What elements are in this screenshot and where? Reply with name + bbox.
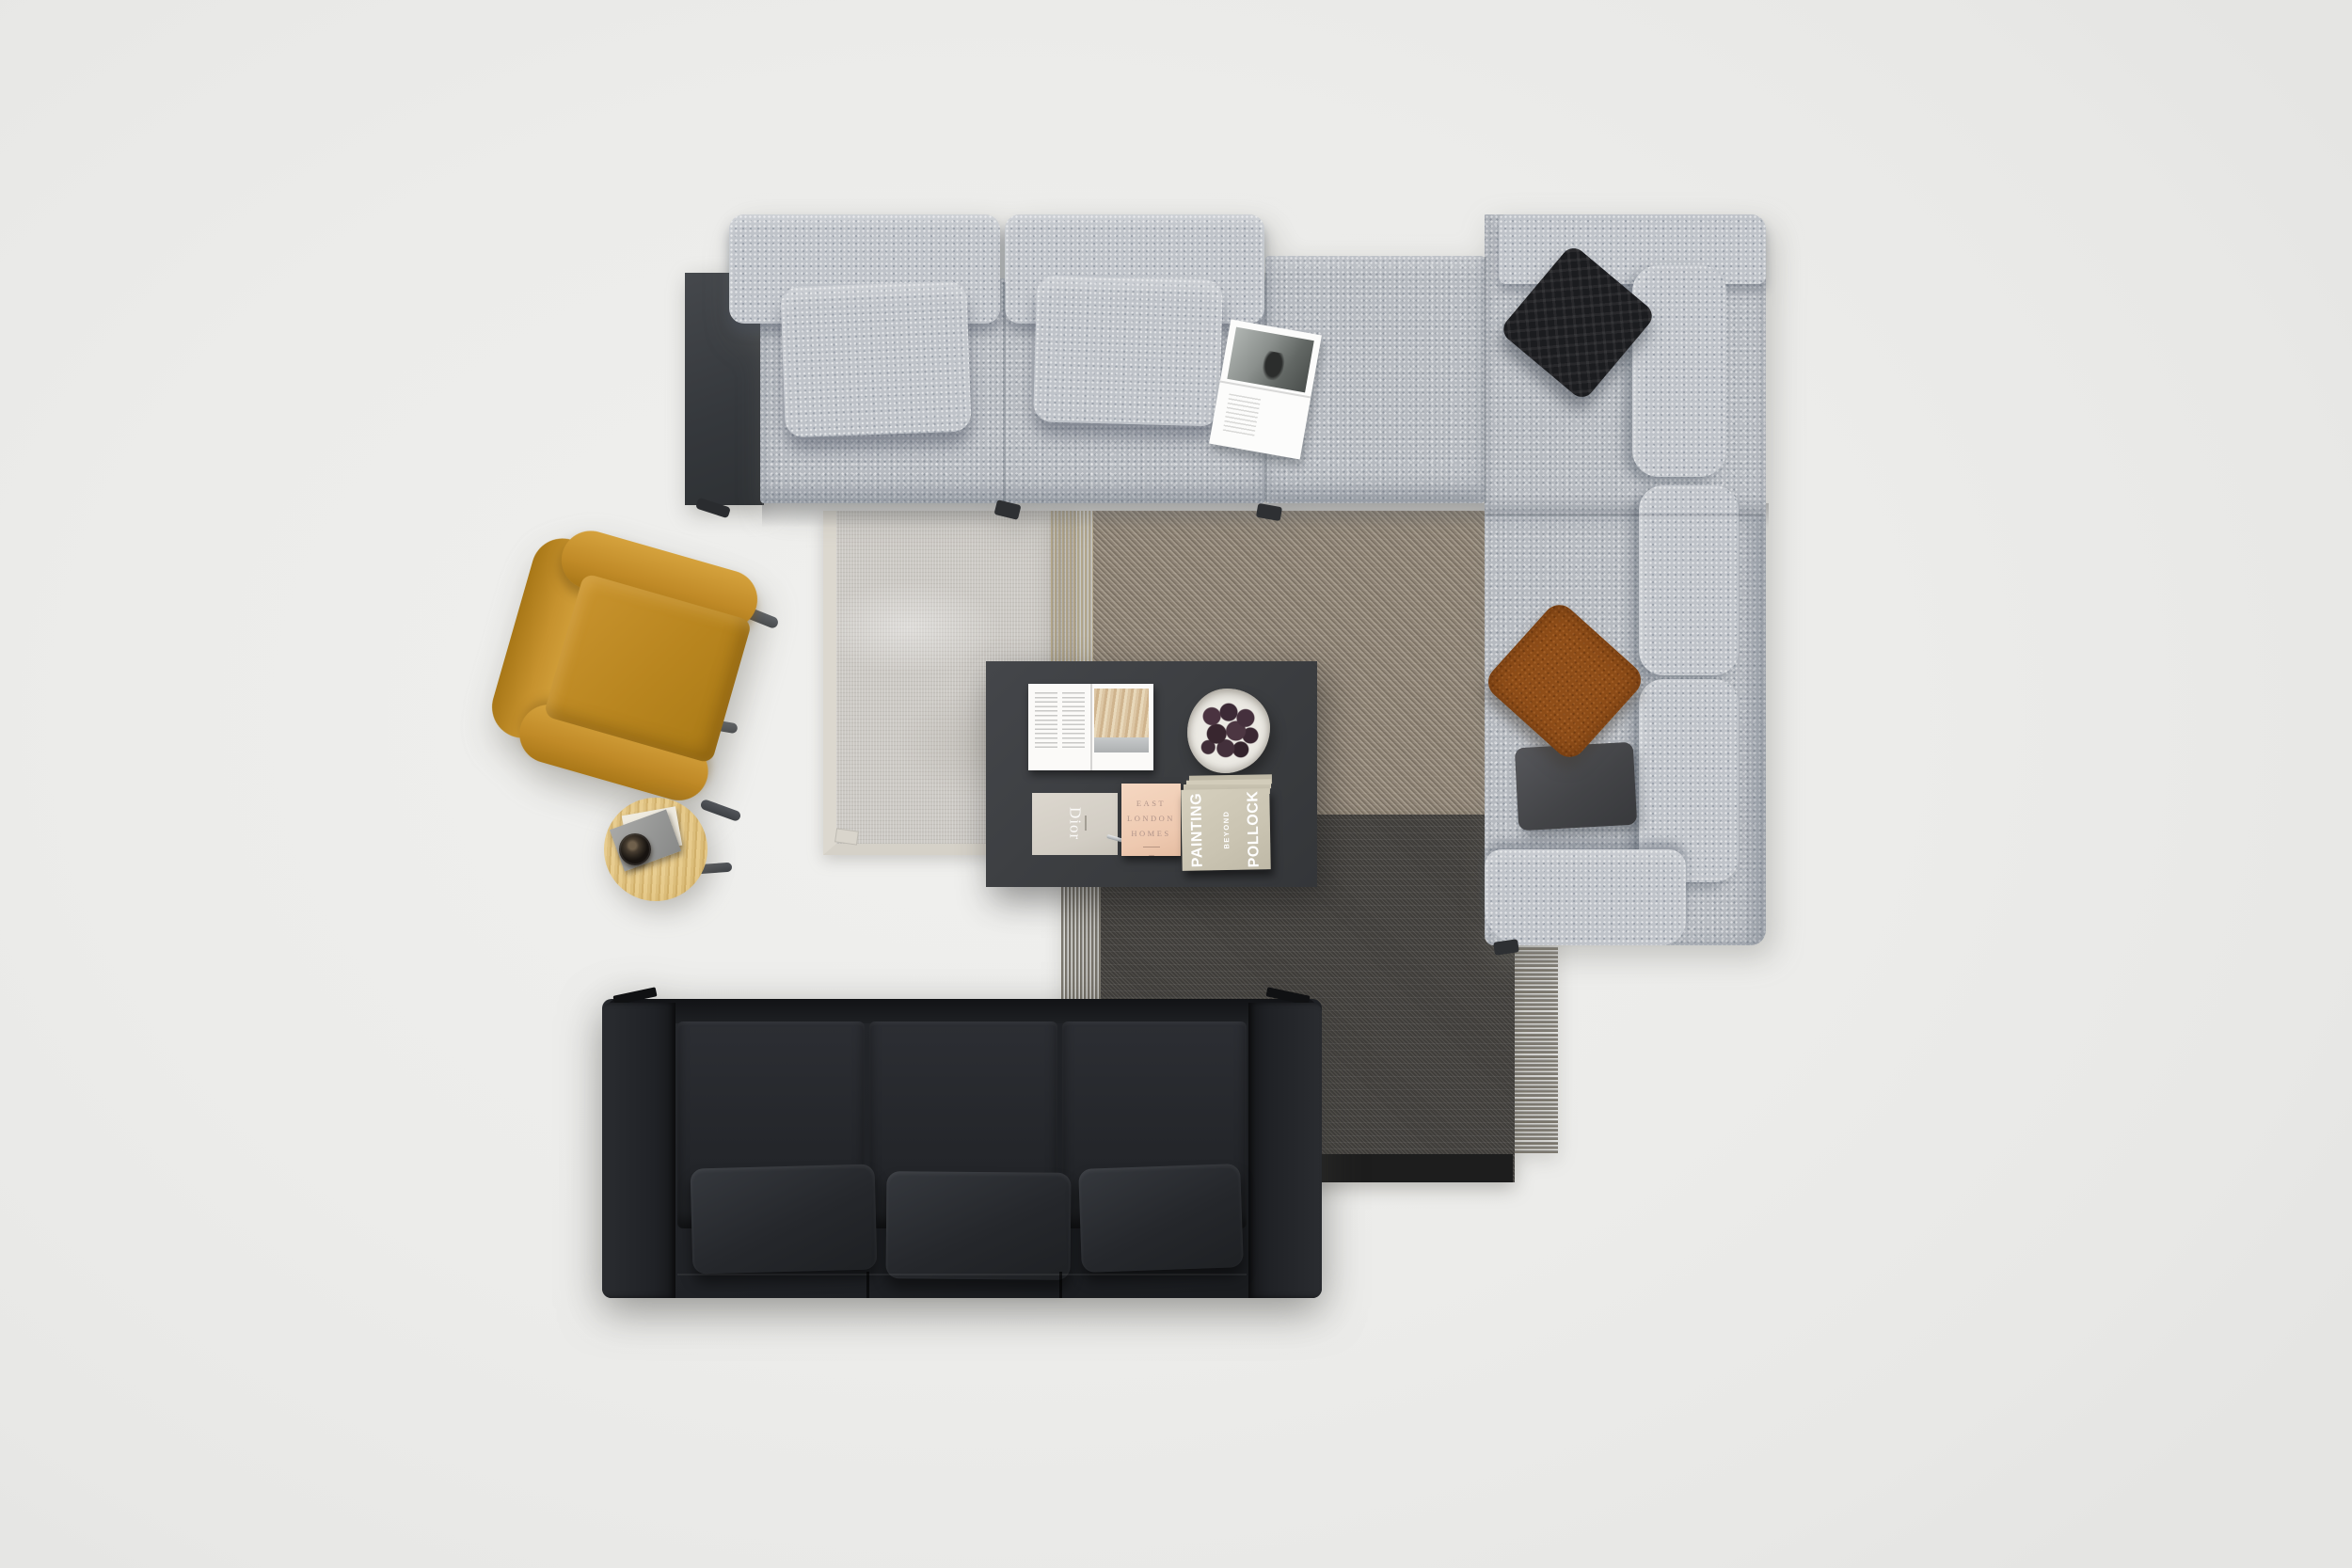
module-seam — [1264, 273, 1267, 503]
lumbar-pillow-left — [780, 281, 971, 438]
sofa-back-rail — [608, 999, 1316, 1023]
book-photo-tan — [1094, 689, 1149, 737]
sectional-seat-deck — [760, 278, 1265, 503]
sofa-seat-pillow — [886, 1171, 1072, 1280]
magazine-photo-page — [1227, 327, 1313, 393]
living-room-top-view: Dior EAST LONDON HOMES PAINTING BEYOND — [0, 0, 2352, 1568]
black-quilted-pillow — [1499, 243, 1658, 402]
sofa-front-seam — [866, 1272, 869, 1298]
sofa-arm-right — [1248, 1003, 1322, 1298]
open-art-book — [1028, 684, 1153, 770]
magazine-text-page — [1223, 393, 1261, 436]
pollock-cover: PAINTING BEYOND POLLOCK — [1181, 788, 1270, 871]
black-console-panel — [685, 273, 764, 505]
title-line: PAINTING — [1188, 793, 1206, 868]
sofa-front-edge-highlight — [677, 1274, 1247, 1275]
black-leather-sofa — [602, 999, 1322, 1298]
book-text-column — [1035, 692, 1057, 751]
pollock-title-rotated: PAINTING BEYOND POLLOCK — [1188, 788, 1263, 870]
sectional-floor-shadow — [762, 503, 1769, 528]
dior-subtitle-line — [1085, 816, 1087, 831]
espresso-cup — [619, 833, 651, 865]
sectional-corner-back-rail — [1499, 214, 1766, 284]
title-line: LONDON — [1127, 811, 1175, 826]
sectional-corner-module — [1485, 214, 1766, 515]
module-seam — [1484, 257, 1486, 503]
east-london-homes-book: EAST LONDON HOMES — [1121, 784, 1181, 856]
charcoal-pillow — [1515, 742, 1637, 831]
east-london-homes-title: EAST LONDON HOMES — [1127, 796, 1175, 841]
sofa-front-seam — [1059, 1272, 1062, 1298]
round-side-table — [604, 798, 707, 901]
sofa-seat-pillow — [691, 1164, 878, 1274]
book-text-column — [1062, 692, 1085, 751]
right-arm-back-cushion-2 — [1639, 679, 1739, 882]
sofa-seat-pillow — [1078, 1164, 1244, 1273]
magazine-photo-figure — [1261, 350, 1286, 381]
module-seam — [1003, 282, 1006, 503]
lumbar-pillow-mid — [1033, 275, 1223, 426]
open-magazine — [1209, 320, 1322, 460]
title-line: HOMES — [1127, 826, 1175, 841]
sofa-arm-left — [602, 1003, 675, 1298]
back-cushion-left — [729, 214, 1000, 324]
title-line: POLLOCK — [1245, 790, 1263, 867]
sectional-chaise — [1265, 256, 1485, 503]
magazine-spine — [1220, 381, 1311, 399]
corner-back-cushion — [1632, 265, 1726, 477]
coffee-table: Dior EAST LONDON HOMES PAINTING BEYOND — [986, 661, 1317, 887]
fruit-bowl — [1187, 689, 1270, 773]
back-cushion-mid — [1005, 214, 1264, 324]
book-photo-band — [1094, 737, 1149, 752]
title-line: BEYOND — [1221, 810, 1231, 848]
side-table-leg — [699, 799, 741, 822]
publisher-mark — [1149, 855, 1154, 856]
rug-label-tag — [834, 828, 859, 845]
mustard-armchair — [480, 516, 778, 811]
dior-title: Dior — [1066, 807, 1085, 840]
rug-fringe-right — [1515, 824, 1558, 1153]
figs — [1199, 702, 1259, 760]
pollock-book-stack: PAINTING BEYOND POLLOCK — [1182, 775, 1274, 871]
dior-book-stack: Dior — [1032, 793, 1118, 855]
title-line: EAST — [1127, 796, 1175, 811]
book-spine — [1090, 684, 1092, 770]
